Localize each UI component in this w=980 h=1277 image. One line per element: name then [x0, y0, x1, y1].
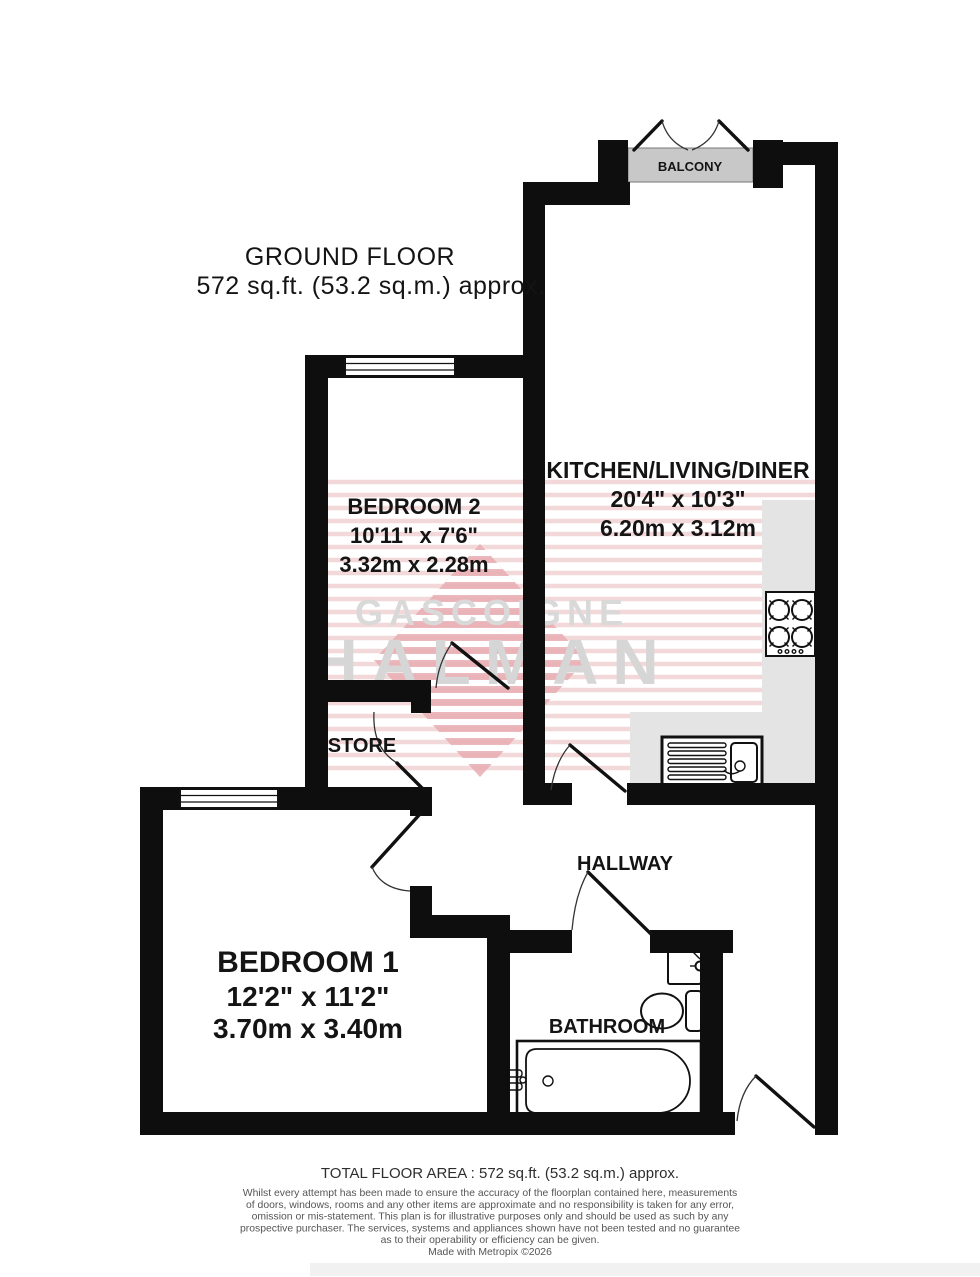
window-bedroom1: [180, 789, 278, 808]
disclaimer-line: Whilst every attempt has been made to en…: [243, 1188, 737, 1199]
floor-area-label: 572 sq.ft. (53.2 sq.m.) approx.: [197, 272, 546, 300]
total-floor-area: TOTAL FLOOR AREA : 572 sq.ft. (53.2 sq.m…: [321, 1165, 679, 1182]
door-bathroom: [572, 872, 651, 934]
wall-segment: [510, 930, 572, 953]
door-balcony-french: [634, 121, 748, 150]
door-entrance: [737, 1076, 814, 1127]
disclaimer-line: prospective purchaser. The services, sys…: [240, 1223, 740, 1234]
floorplan-page: GASCOIGNE HALMAN: [0, 0, 980, 1277]
wall-segment: [411, 680, 431, 713]
bathtub-icon: [505, 1041, 701, 1119]
wall-segment: [140, 1112, 735, 1135]
bedroom2-dims-metric: 3.32m x 2.28m: [339, 552, 488, 577]
floor-plan-svg: GASCOIGNE HALMAN: [0, 0, 980, 1277]
floor-title: GROUND FLOOR: [245, 243, 455, 271]
disclaimer-line: omission or mis-statement. This plan is …: [252, 1212, 730, 1223]
wall-segment: [410, 886, 432, 918]
balcony-label: BALCONY: [658, 159, 723, 174]
store-label: STORE: [328, 735, 397, 757]
hallway-label: HALLWAY: [577, 853, 674, 875]
bedroom1-dims-imperial: 12'2" x 11'2": [227, 981, 390, 1012]
bedroom1-dims-metric: 3.70m x 3.40m: [213, 1013, 403, 1044]
hob-icon: [766, 592, 815, 656]
wall-segment: [140, 787, 163, 1135]
door-bedroom1: [372, 814, 420, 891]
bottom-strip: [310, 1263, 980, 1276]
wall-segment: [305, 355, 328, 810]
wall-segment: [598, 140, 628, 185]
metropix-credit: Made with Metropix ©2026: [428, 1247, 552, 1258]
bedroom2-dims-imperial: 10'11" x 7'6": [350, 523, 478, 548]
disclaimer-line: of doors, windows, rooms and any other i…: [246, 1200, 734, 1211]
kitchen-dims-metric: 6.20m x 3.12m: [600, 515, 756, 541]
kitchen-label: KITCHEN/LIVING/DINER: [546, 457, 810, 483]
bedroom1-label: BEDROOM 1: [217, 946, 399, 979]
wall-segment: [700, 930, 723, 1135]
bedroom2-label: BEDROOM 2: [347, 494, 480, 519]
kitchen-sink-icon: [662, 737, 762, 788]
window-bedroom2: [345, 357, 455, 376]
wall-segment: [815, 142, 838, 1135]
wall-segment: [487, 915, 510, 1135]
wall-segment: [627, 783, 817, 805]
kitchen-dims-imperial: 20'4" x 10'3": [610, 486, 745, 512]
wall-segment: [545, 783, 572, 805]
disclaimer-line: as to their operability or efficiency ca…: [381, 1235, 600, 1246]
bathroom-label: BATHROOM: [549, 1016, 665, 1038]
